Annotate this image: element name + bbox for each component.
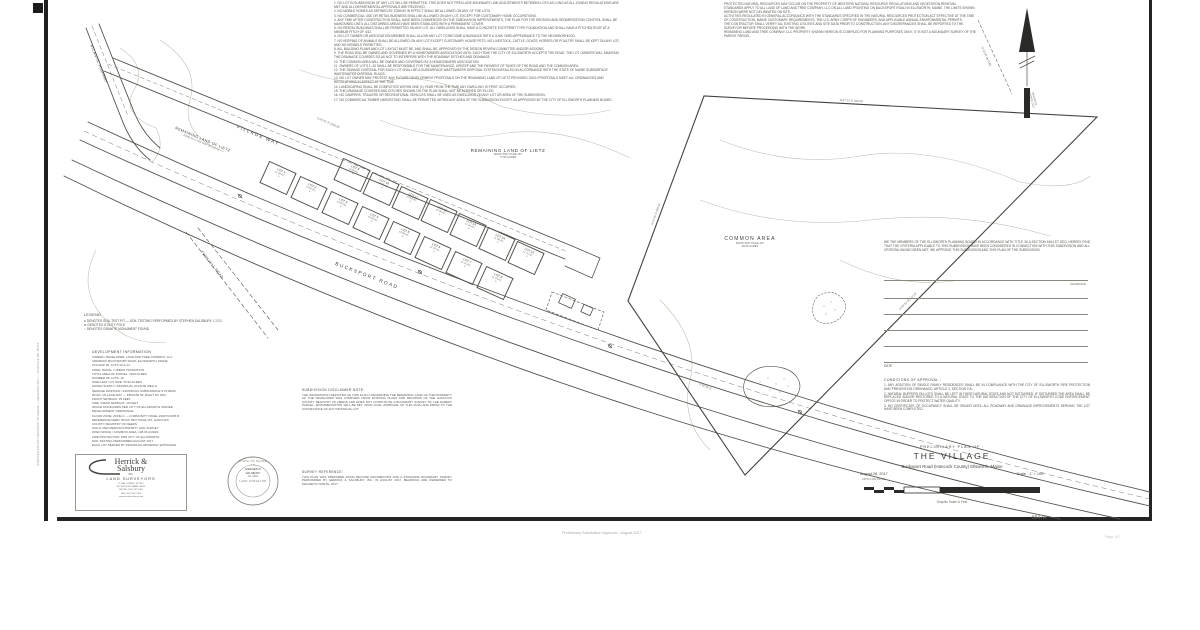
tie-line [978,20,1012,94]
common-area-label: COMMON AREA BOOK 5527 PAGE 167 28.66 ACR… [700,236,800,248]
conditions-title: CONDITIONS OF APPROVAL : [884,378,1090,382]
text-line: EACH LOT SERVED BY INDIVIDUAL DRIVEWAY E… [92,444,252,448]
signature-line [884,314,1088,315]
text-line: 13. NO LOT OWNER MAY PROTEST ANY FUTURE … [334,77,620,85]
text-line: ○ DENOTES GRANITE MONUMENT FOUND [84,328,274,332]
chairman-label: CHAIRMAN [1070,282,1086,286]
logo-address: 12 OAK STREET, SUITE 1ELLSWORTH, MAINE 0… [76,483,186,499]
text-line: 3. NO CERTIFICATE OF OCCUPANCY SHALL BE … [884,405,1090,413]
text-line: FAX: (207) 667-1109 [76,493,186,496]
resource-notes-block: PROTECTED NATURAL RESOURCES MAY OCCUR ON… [724,3,976,40]
signature-line [884,346,1088,347]
surveyor-stamp: STATE OF MAINE ★ ★ STEPHEN R. SALSBURY N… [227,456,279,506]
signature-line [884,298,1088,299]
approval-statement: WE THE MEMBERS OF THE ELLSWORTH PLANNING… [884,241,1090,252]
text-line: ELLSWORTH, MAINE 04605 [76,486,186,489]
text-line: REMAINING LAND AND TREE COMPANY, LLC PRO… [724,31,976,39]
text-line: 9. THE ROAD WILL BE OWNED AND GOVERNED B… [334,52,620,60]
date-label: DATE [884,364,892,368]
text-line: 17. NO COMMERCIAL TIMBER HARVESTING SHAL… [334,99,620,103]
stamp-number: No. 2303 [227,475,279,478]
conditions-list: 1. ANY ADDITION OF SINGLE FAMILY RESIDEN… [884,384,1090,412]
utility-pole-symbols [238,194,802,414]
logo-name-2: Salsbury [76,464,186,473]
signature-line [884,280,1088,281]
stamp-stars: ★ ★ [227,463,279,466]
atlantic-highway-lines [86,24,160,160]
wetland-area [812,292,845,323]
legend-title: LEGEND [84,313,274,317]
plan-location: Bucksport Road (Hancock County) Ellswort… [852,464,1052,469]
title-block-kicker: PRELIMINARY PLAN OF : [852,444,1052,449]
survey-reference-block: SURVEY REFERENCE: THIS PLAN WAS PREPARED… [302,470,452,486]
scale-caption: Graphic Scale in Feet [852,500,1052,504]
signature-line [884,330,1088,331]
general-notes-block: 1. NO LOT IN SUBDIVISION OF ANY LOT WILL… [334,2,620,103]
text-line: PROTECTED NATURAL RESOURCES MAY OCCUR ON… [724,3,976,14]
plan-scale: Scale : 1" = 100' [1016,472,1044,476]
remaining-land-label: REMAINING LAND OF LIETZ BOOK 5527 PAGE 1… [440,148,576,159]
text-line: 2. NATURAL BUFFERS ON LOTS SHALL BE LEFT… [884,393,1090,404]
text-line: 1. ANY ADDITION OF SINGLE FAMILY RESIDEN… [884,384,1090,392]
footer-caption: Preliminary Subdivision Approval - Augus… [562,531,642,535]
atlantic-centerline [92,26,128,116]
plat-sheet: HANCOCK COUNTY REGISTRY OF DEEDS — RECEI… [0,0,1200,630]
pond [744,366,800,406]
surveyor-logo-block: Herrick & Salsbury INC. LAND SURVEYORS 1… [75,454,187,511]
approval-block: WE THE MEMBERS OF THE ELLSWORTH PLANNING… [884,241,1090,413]
plan-title: THE VILLAGE [852,451,1052,461]
title-block: PRELIMINARY PLAN OF : THE VILLAGE Bucksp… [852,444,1052,504]
disclaimer-block: SUBDIVISION DISCLAIMER NOTE: THE INFORMA… [302,388,452,411]
development-info-title: DEVELOPMENT INFORMATION [92,350,252,354]
text-line: PHONE: (207) 667-5300 [76,489,186,492]
sheet-number: 5547A [1032,515,1046,521]
legend-block: LEGEND ● DENOTES SOIL TEST PIT — SOIL TE… [84,313,274,333]
page-note: Page 1/2 [1105,535,1119,539]
text-line: www.herricksalsbury.com [76,496,186,499]
signature-line [884,362,1088,363]
stamp-ring-bottom: LAND SURVEYOR [227,480,279,483]
turnaround-structures [546,246,604,330]
plan-date: August 28, 2017 [860,472,888,476]
scale-tick-numbers: 100 50 0 100 200 300 [852,478,1052,481]
graphic-scale-bar [862,486,1042,494]
text-line: 12 OAK STREET, SUITE 1 [76,483,186,486]
development-info-block: DEVELOPMENT INFORMATION OWNER / DEVELOPE… [92,350,252,448]
